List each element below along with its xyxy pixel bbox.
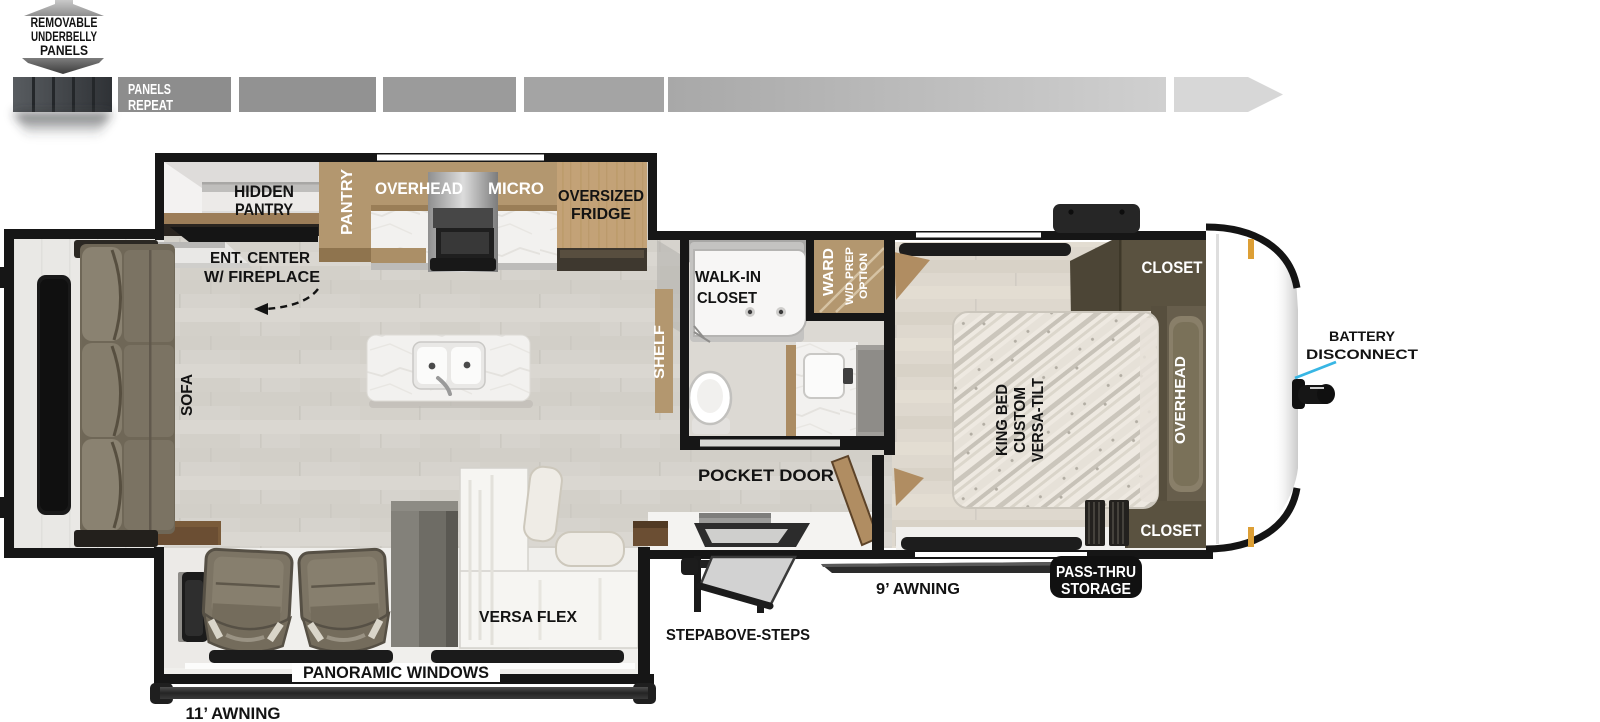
svg-text:PANORAMIC WINDOWS: PANORAMIC WINDOWS [303,664,489,682]
svg-text:MICRO: MICRO [488,180,544,198]
svg-text:CLOSET: CLOSET [697,290,757,307]
svg-text:PASS-THRU: PASS-THRU [1056,564,1136,581]
svg-text:VERSA FLEX: VERSA FLEX [479,609,577,626]
svg-text:OVERHEAD: OVERHEAD [375,180,463,198]
svg-text:ENT. CENTER: ENT. CENTER [210,250,310,267]
svg-text:POCKET DOOR: POCKET DOOR [698,466,834,485]
svg-text:OVERSIZED: OVERSIZED [558,188,644,205]
svg-text:9’ AWNING: 9’ AWNING [876,581,960,598]
svg-text:PANTRY: PANTRY [235,201,293,219]
svg-text:HIDDEN: HIDDEN [234,183,294,201]
svg-text:STORAGE: STORAGE [1061,581,1131,598]
svg-text:W/D PREP: W/D PREP [844,247,856,305]
svg-text:PANELS: PANELS [128,82,171,98]
svg-text:UNDERBELLY: UNDERBELLY [31,29,97,44]
svg-text:SOFA: SOFA [179,374,196,416]
svg-text:CLOSET: CLOSET [1142,258,1204,277]
svg-text:PANTRY: PANTRY [339,169,356,235]
svg-text:REPEAT: REPEAT [128,98,173,114]
svg-text:SHELF: SHELF [651,325,668,379]
svg-text:WALK-IN: WALK-IN [695,269,761,286]
svg-text:BATTERY: BATTERY [1329,329,1395,344]
svg-text:CUSTOM: CUSTOM [1012,387,1029,453]
svg-text:DISCONNECT: DISCONNECT [1306,347,1419,362]
svg-text:STEPABOVE-STEPS: STEPABOVE-STEPS [666,627,810,644]
svg-text:OPTION: OPTION [858,253,870,299]
svg-text:KING BED: KING BED [994,384,1011,456]
svg-text:11’ AWNING: 11’ AWNING [186,704,281,722]
svg-text:OVERHEAD: OVERHEAD [1172,356,1189,444]
svg-text:WARD: WARD [820,248,837,296]
svg-text:REMOVABLE: REMOVABLE [31,15,98,30]
svg-text:CLOSET: CLOSET [1141,521,1203,540]
svg-text:VERSA-TILT: VERSA-TILT [1030,378,1047,462]
svg-text:W/ FIREPLACE: W/ FIREPLACE [204,269,320,286]
svg-text:PANELS: PANELS [40,43,88,58]
svg-text:FRIDGE: FRIDGE [571,206,631,223]
